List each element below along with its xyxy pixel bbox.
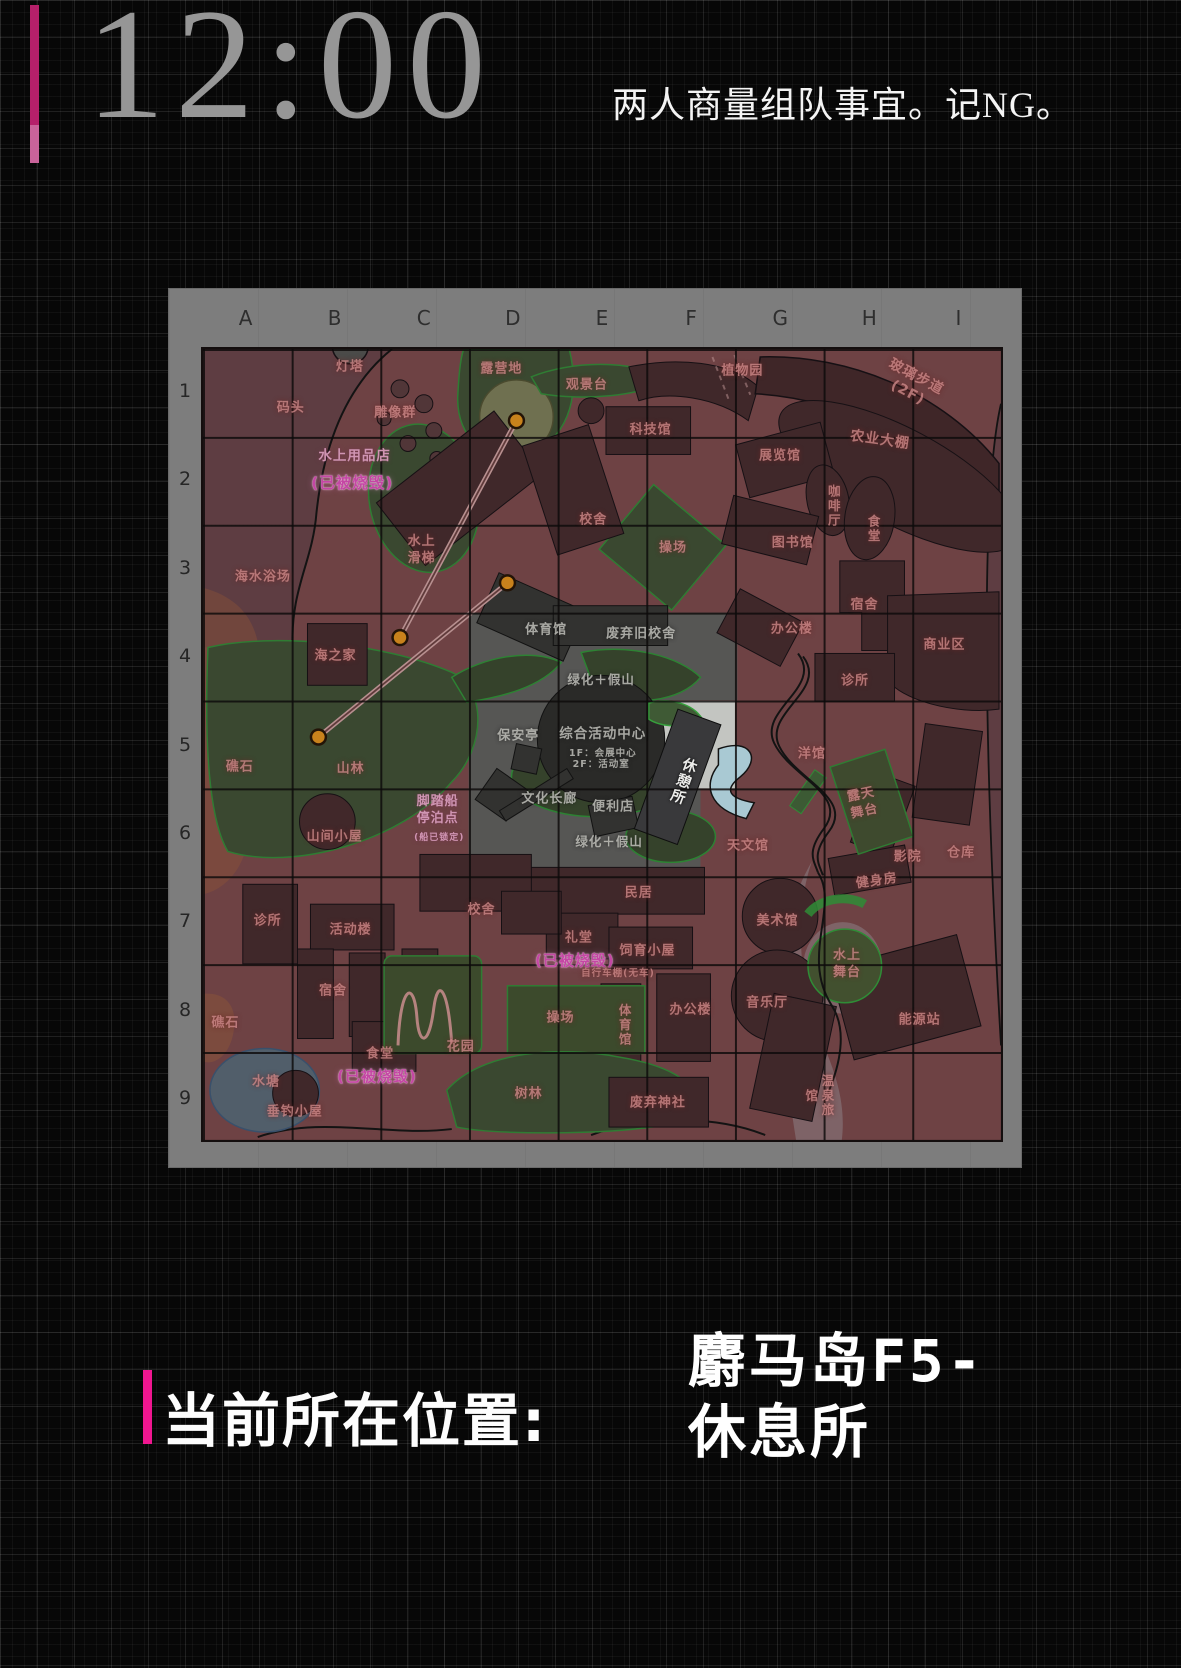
map-column-letters: ABCDEFGHI [201,289,1003,347]
column-letter-A: A [239,306,253,330]
column-letter-H: H [862,306,877,330]
column-letter-D: D [505,306,520,330]
zipline-anchor-dot [311,730,326,745]
location-line2: 休息所 [688,1397,985,1468]
row-number-3: 3 [179,557,191,579]
time-display: 12:00 [86,0,496,144]
column-letter-C: C [417,306,431,330]
event-note: 两人商量组队事宜。记NG。 [612,76,1073,128]
map-grid: 灯塔码头雕像群露营地观景台植物园玻璃步道(2F)农业大棚水上用品店(已被烧毁)科… [201,347,1003,1142]
row-number-6: 6 [179,822,191,844]
row-number-9: 9 [179,1087,191,1109]
location-line1: 麝马岛F5- [688,1326,985,1397]
column-letter-B: B [328,306,342,330]
column-letter-G: G [772,306,788,330]
location-accent-bar [143,1370,152,1444]
row-number-1: 1 [179,380,191,402]
zipline-anchor-dot [500,575,515,590]
island-map: ABCDEFGHI 123456789 [168,288,1022,1168]
row-number-5: 5 [179,734,191,756]
row-number-4: 4 [179,645,191,667]
column-letter-E: E [596,306,609,330]
map-terrain [203,349,1001,1140]
map-row-numbers: 123456789 [169,347,201,1142]
row-number-8: 8 [179,999,191,1021]
accent-bar-top [30,5,39,163]
zipline-anchor-dot [509,413,524,428]
column-letter-F: F [685,306,697,330]
column-letter-I: I [955,306,961,330]
row-number-2: 2 [179,468,191,490]
game-screen: 12:00 两人商量组队事宜。记NG。 ABCDEFGHI 123456789 [0,0,1181,1668]
location-label: 当前所在位置: [162,1374,547,1458]
row-number-7: 7 [179,910,191,932]
zipline-anchor-dot [393,630,408,645]
location-value: 麝马岛F5- 休息所 [688,1326,985,1468]
